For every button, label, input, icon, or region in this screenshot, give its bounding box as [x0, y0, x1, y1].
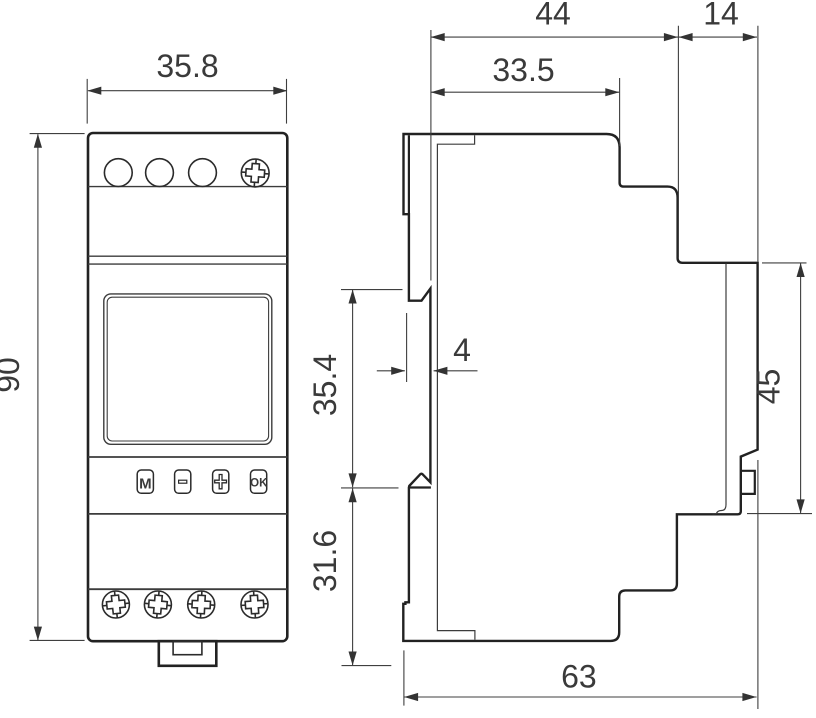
svg-text:31.6: 31.6 [307, 530, 343, 592]
svg-text:4: 4 [453, 332, 471, 368]
svg-text:35.4: 35.4 [307, 354, 343, 416]
svg-text:M: M [139, 476, 152, 493]
svg-text:35.8: 35.8 [156, 48, 218, 84]
svg-text:90: 90 [0, 357, 26, 393]
svg-text:44: 44 [535, 0, 571, 32]
svg-text:14: 14 [703, 0, 739, 32]
svg-text:63: 63 [561, 659, 597, 695]
svg-text:33.5: 33.5 [492, 52, 554, 88]
svg-text:45: 45 [751, 369, 787, 405]
svg-text:OK: OK [250, 478, 268, 490]
